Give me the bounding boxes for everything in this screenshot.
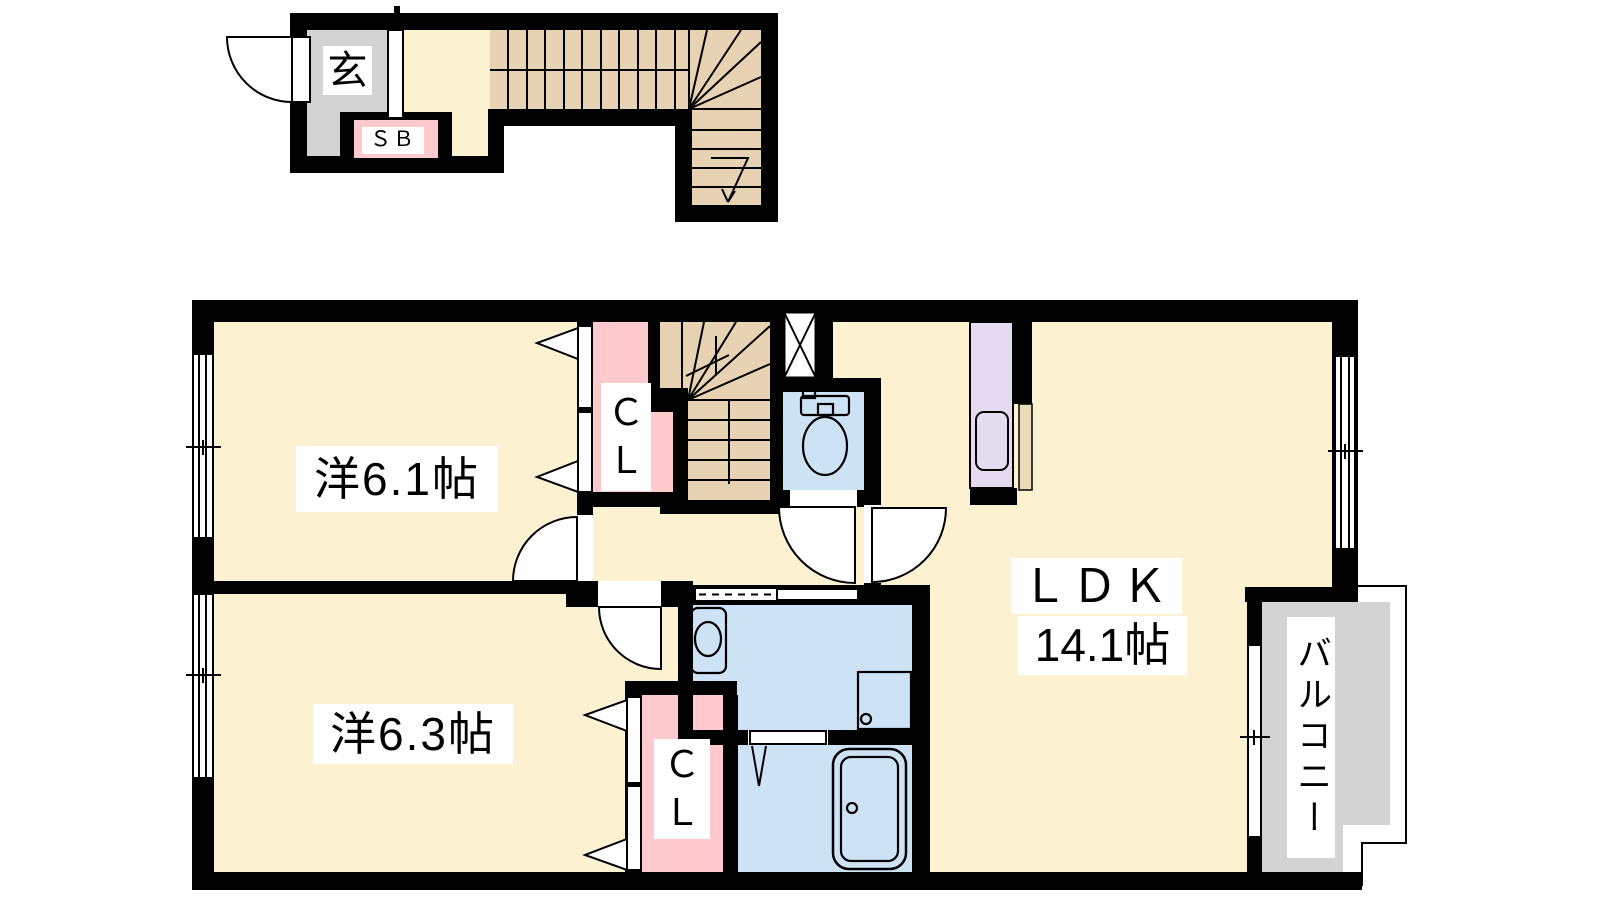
entrance-label: 玄 bbox=[323, 46, 372, 95]
washroom-sliding-door-icon bbox=[695, 588, 860, 601]
ldk-size-label: 14.1帖 bbox=[1018, 616, 1187, 675]
ldk-label: ＬＤＫ bbox=[1011, 558, 1182, 614]
bathroom-floor bbox=[738, 745, 912, 872]
entrance-door-icon bbox=[227, 37, 310, 102]
closet-lower-label: ＣＬ bbox=[654, 739, 710, 839]
1f-hall-right-wall bbox=[488, 109, 504, 173]
first-floor-plan bbox=[227, 6, 778, 222]
room63-label: 洋6.3帖 bbox=[313, 704, 513, 764]
closet-upper-label: ＣＬ bbox=[601, 383, 651, 491]
kitchen-side-counter bbox=[1019, 404, 1032, 490]
shoe-box-label: ＳＢ bbox=[362, 127, 424, 154]
pipe-space-icon bbox=[784, 312, 816, 378]
balcony-label: バルコニー bbox=[1287, 617, 1335, 858]
1f-stairs-bottom-wall bbox=[488, 109, 692, 126]
room61-label: 洋6.1帖 bbox=[296, 446, 498, 512]
floor-plan-drawing bbox=[0, 0, 1600, 900]
second-floor-plan bbox=[186, 300, 1406, 890]
kitchen-sink-icon bbox=[976, 412, 1008, 470]
floor-plan: 玄 ＳＢ 洋6.1帖 洋6.3帖 ＬＤＫ 14.1帖 ＣＬ ＣＬ バルコニー bbox=[0, 0, 1600, 900]
